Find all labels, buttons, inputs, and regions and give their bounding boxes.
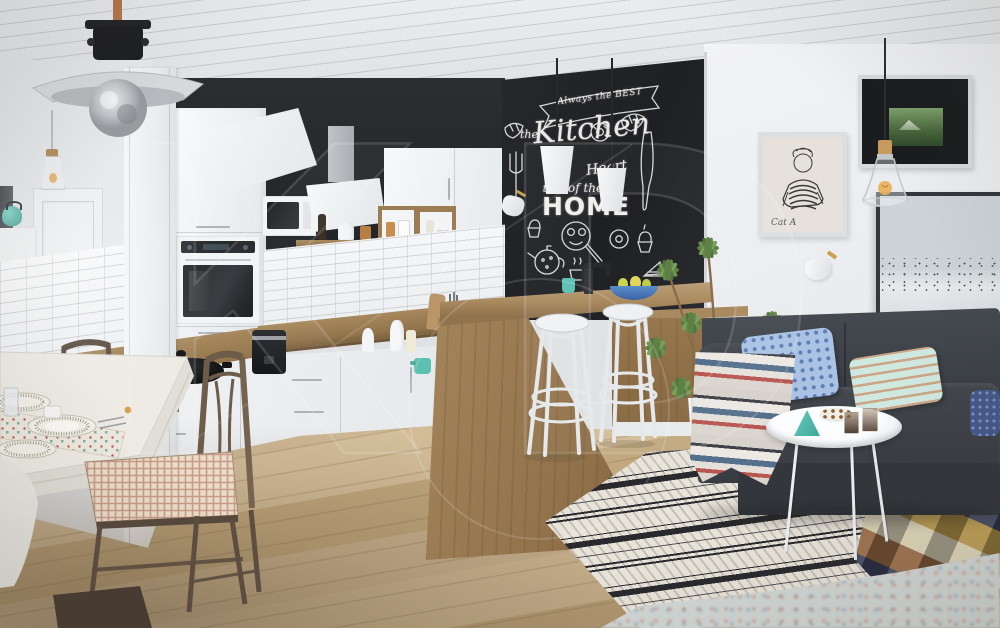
interior-scene: Always the BEST the Kitchen is the Heart… xyxy=(0,0,1000,628)
teal-kettle xyxy=(2,206,22,226)
navy-pillow xyxy=(970,390,1000,436)
watermark-letters: KD xyxy=(100,28,890,568)
small-pendant-cap xyxy=(46,149,58,157)
filament-bulb xyxy=(49,173,57,183)
seascape-birds xyxy=(882,258,998,294)
